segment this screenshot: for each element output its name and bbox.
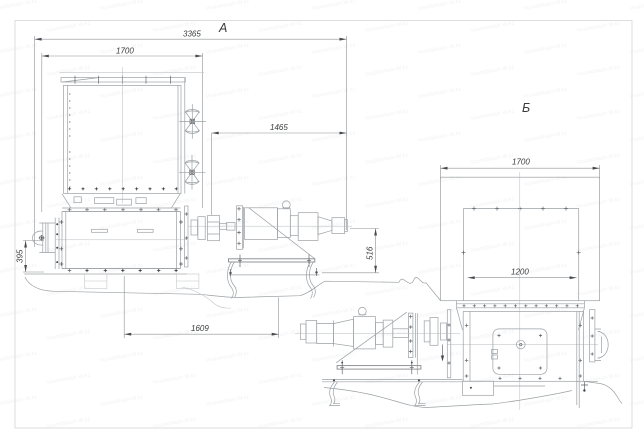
svg-text:1700: 1700 [512,158,530,167]
svg-text:1609: 1609 [191,324,209,333]
svg-text:3365: 3365 [183,30,201,39]
svg-text:395: 395 [16,249,25,263]
svg-text:A: A [218,21,227,35]
svg-text:1700: 1700 [116,47,134,56]
svg-text:1200: 1200 [511,268,529,277]
svg-text:516: 516 [366,246,375,260]
svg-text:1465: 1465 [270,123,288,132]
svg-text:Б: Б [522,101,530,115]
